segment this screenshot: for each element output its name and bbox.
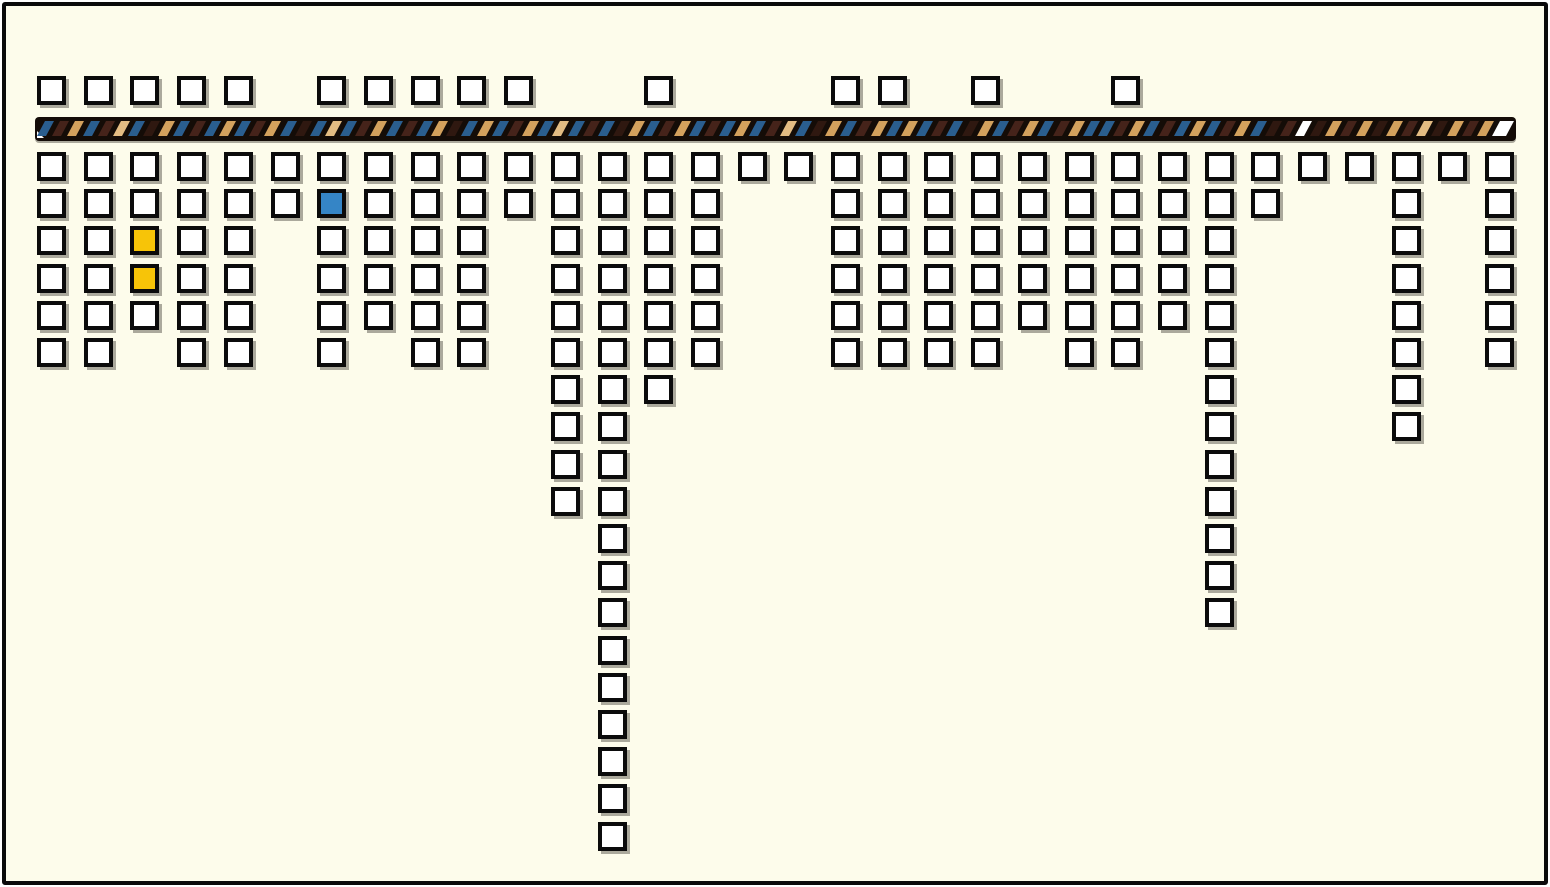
tally-square[interactable] [1205, 226, 1234, 255]
tally-square[interactable] [831, 189, 860, 218]
band-stripe [477, 121, 494, 136]
tally-square[interactable] [1205, 264, 1234, 293]
band-stripe-white [1492, 121, 1514, 136]
band-stripe [1068, 121, 1085, 136]
band-stripe [1083, 121, 1100, 136]
tally-square[interactable] [224, 264, 253, 293]
band-stripe [1401, 121, 1418, 136]
band-stripe [916, 121, 933, 136]
band-stripe [810, 121, 827, 136]
band-stripe [977, 121, 994, 136]
tally-square[interactable] [691, 338, 720, 367]
tally-square[interactable] [784, 152, 813, 181]
tally-square[interactable] [1065, 189, 1094, 218]
tally-square[interactable] [224, 338, 253, 367]
tally-square[interactable] [924, 301, 953, 330]
tally-square[interactable] [1065, 264, 1094, 293]
band-stripe [734, 121, 751, 136]
tally-square[interactable] [1018, 152, 1047, 181]
band-stripe [992, 121, 1009, 136]
band-stripe [67, 121, 84, 136]
band-stripe [780, 121, 797, 136]
tally-square[interactable] [364, 264, 393, 293]
band-stripe [1386, 121, 1403, 136]
tally-square[interactable] [84, 189, 113, 218]
tally-square[interactable] [1205, 338, 1234, 367]
band-stripe [765, 121, 782, 136]
tally-square[interactable] [1205, 375, 1234, 404]
band-stripe [1280, 121, 1297, 136]
tally-square[interactable] [177, 301, 206, 330]
band-stripe [613, 121, 630, 136]
top-marker-square[interactable] [971, 76, 1000, 105]
tally-square[interactable] [411, 301, 440, 330]
stage [0, 0, 1550, 887]
tally-square[interactable] [644, 264, 673, 293]
tally-square[interactable] [971, 152, 1000, 181]
tally-square[interactable] [37, 189, 66, 218]
top-marker-square[interactable] [37, 76, 66, 105]
tally-square[interactable] [1111, 226, 1140, 255]
tally-square[interactable] [644, 189, 673, 218]
tally-square[interactable] [1298, 152, 1327, 181]
band-stripe [658, 121, 675, 136]
band-stripe [537, 121, 554, 136]
tally-square[interactable] [598, 152, 627, 181]
tally-square[interactable] [1485, 152, 1514, 181]
tally-square[interactable] [551, 375, 580, 404]
tally-square[interactable] [878, 189, 907, 218]
tally-square[interactable] [1345, 152, 1374, 181]
top-marker-square[interactable] [317, 76, 346, 105]
band-stripe [1159, 121, 1176, 136]
band-stripe [855, 121, 872, 136]
band-stripe [1204, 121, 1221, 136]
band-stripe [628, 121, 645, 136]
tally-square[interactable] [504, 189, 533, 218]
tally-square[interactable] [1205, 301, 1234, 330]
band-stripe [1022, 121, 1039, 136]
band-stripe [1007, 121, 1024, 136]
top-marker-square[interactable] [457, 76, 486, 105]
tally-square[interactable] [37, 338, 66, 367]
tally-square[interactable] [1485, 264, 1514, 293]
band-stripe [249, 121, 266, 136]
tally-square[interactable] [971, 226, 1000, 255]
band-stripe [568, 121, 585, 136]
tally-square[interactable] [691, 264, 720, 293]
band-stripe [1265, 121, 1282, 136]
band-stripe [264, 121, 281, 136]
tally-square[interactable] [551, 338, 580, 367]
tally-square[interactable] [971, 301, 1000, 330]
top-marker-square[interactable] [831, 76, 860, 105]
tally-square[interactable] [1065, 226, 1094, 255]
band-stripe [52, 121, 69, 136]
top-marker-square[interactable] [878, 76, 907, 105]
tally-square[interactable] [457, 189, 486, 218]
tally-square[interactable] [1158, 264, 1187, 293]
tally-square[interactable] [1251, 189, 1280, 218]
tally-square[interactable] [598, 598, 627, 627]
band-stripe [416, 121, 433, 136]
tally-square[interactable] [1392, 301, 1421, 330]
tally-square[interactable] [1205, 561, 1234, 590]
tally-square[interactable] [1158, 189, 1187, 218]
tally-square[interactable] [271, 152, 300, 181]
tally-square[interactable] [551, 189, 580, 218]
tally-square[interactable] [878, 152, 907, 181]
band-stripe [704, 121, 721, 136]
band-stripe [886, 121, 903, 136]
band-stripe [931, 121, 948, 136]
band-stripe [1250, 121, 1267, 136]
band-stripe [83, 121, 100, 136]
band-stripe [719, 121, 736, 136]
tally-square[interactable] [457, 152, 486, 181]
tally-square[interactable] [831, 152, 860, 181]
tally-square[interactable] [598, 673, 627, 702]
tally-square[interactable] [1111, 152, 1140, 181]
tally-square[interactable] [598, 375, 627, 404]
tally-square[interactable] [457, 338, 486, 367]
tally-square[interactable] [1205, 598, 1234, 627]
tally-square[interactable] [130, 301, 159, 330]
tally-square[interactable] [457, 301, 486, 330]
tally-square[interactable] [971, 264, 1000, 293]
band-stripe [173, 121, 190, 136]
tally-square[interactable] [364, 189, 393, 218]
tally-square[interactable] [1392, 338, 1421, 367]
tally-square[interactable] [598, 747, 627, 776]
tally-square[interactable] [364, 301, 393, 330]
tally-square[interactable] [457, 226, 486, 255]
tally-square[interactable] [1158, 152, 1187, 181]
tally-square[interactable] [411, 338, 440, 367]
tally-square[interactable] [130, 189, 159, 218]
tally-square[interactable] [598, 710, 627, 739]
tally-square[interactable] [37, 152, 66, 181]
tally-square[interactable] [551, 226, 580, 255]
tally-square[interactable] [84, 264, 113, 293]
tally-square[interactable] [551, 152, 580, 181]
tally-square[interactable] [551, 301, 580, 330]
band-stripe [1416, 121, 1433, 136]
band-stripe [1431, 121, 1448, 136]
tally-square[interactable] [924, 189, 953, 218]
tally-square[interactable] [551, 412, 580, 441]
tally-square[interactable] [1018, 264, 1047, 293]
band-stripe [507, 121, 524, 136]
tally-square[interactable] [598, 561, 627, 590]
band-stripe [370, 121, 387, 136]
highlighted-square-yellow[interactable] [130, 264, 159, 293]
band-stripe [113, 121, 130, 136]
tally-square[interactable] [878, 264, 907, 293]
tally-square[interactable] [37, 264, 66, 293]
tally-square[interactable] [504, 152, 533, 181]
tally-square[interactable] [457, 264, 486, 293]
tally-square[interactable] [598, 524, 627, 553]
tally-square[interactable] [644, 338, 673, 367]
tally-square[interactable] [177, 226, 206, 255]
band-stripe [825, 121, 842, 136]
tally-square[interactable] [1485, 301, 1514, 330]
band-stripe [1234, 121, 1251, 136]
tally-square[interactable] [411, 226, 440, 255]
tally-square[interactable] [644, 152, 673, 181]
band-stripe [189, 121, 206, 136]
tally-square[interactable] [1158, 226, 1187, 255]
band-stripe [386, 121, 403, 136]
tally-square[interactable] [831, 338, 860, 367]
band-stripe [204, 121, 221, 136]
tally-square[interactable] [1485, 338, 1514, 367]
tally-square[interactable] [878, 301, 907, 330]
band-stripe [461, 121, 478, 136]
tally-square[interactable] [738, 152, 767, 181]
tally-square[interactable] [317, 338, 346, 367]
band-stripe [143, 121, 160, 136]
tally-square[interactable] [924, 338, 953, 367]
highlighted-square-blue[interactable] [317, 189, 346, 218]
tally-square[interactable] [177, 189, 206, 218]
tally-square[interactable] [878, 226, 907, 255]
band-stripe [946, 121, 963, 136]
highlighted-square-yellow[interactable] [130, 226, 159, 255]
tally-square[interactable] [317, 301, 346, 330]
tally-square[interactable] [644, 226, 673, 255]
tally-square[interactable] [411, 152, 440, 181]
tally-square[interactable] [130, 152, 159, 181]
tally-square[interactable] [317, 152, 346, 181]
band-stripe [1037, 121, 1054, 136]
band-stripe [1143, 121, 1160, 136]
band-stripe [446, 121, 463, 136]
tally-square[interactable] [551, 487, 580, 516]
band-stripe [522, 121, 539, 136]
tally-square[interactable] [831, 264, 860, 293]
band-stripe [325, 121, 342, 136]
top-marker-square[interactable] [411, 76, 440, 105]
top-marker-square[interactable] [1111, 76, 1140, 105]
tally-square[interactable] [691, 189, 720, 218]
tally-square[interactable] [1251, 152, 1280, 181]
band-stripe [128, 121, 145, 136]
tally-square[interactable] [411, 264, 440, 293]
tally-square[interactable] [1438, 152, 1467, 181]
tally-square[interactable] [924, 226, 953, 255]
tally-square[interactable] [224, 152, 253, 181]
band-stripe [1340, 121, 1357, 136]
tally-square[interactable] [1392, 264, 1421, 293]
top-marker-square[interactable] [84, 76, 113, 105]
tally-square[interactable] [691, 152, 720, 181]
tally-square[interactable] [1065, 152, 1094, 181]
band-stripe-white [1295, 121, 1312, 136]
tally-square[interactable] [1111, 338, 1140, 367]
tally-square[interactable] [84, 301, 113, 330]
tally-square[interactable] [971, 338, 1000, 367]
band-stripe [1174, 121, 1191, 136]
tally-square[interactable] [1392, 152, 1421, 181]
tally-square[interactable] [1392, 189, 1421, 218]
band-stripe [901, 121, 918, 136]
tally-square[interactable] [598, 301, 627, 330]
tally-square[interactable] [84, 226, 113, 255]
band-stripe [295, 121, 312, 136]
band-stripe [1462, 121, 1479, 136]
tally-square[interactable] [177, 264, 206, 293]
band-stripe [552, 121, 569, 136]
tally-square[interactable] [598, 226, 627, 255]
tally-square[interactable] [37, 226, 66, 255]
tally-square[interactable] [177, 152, 206, 181]
tally-square[interactable] [224, 301, 253, 330]
tally-square[interactable] [924, 264, 953, 293]
top-marker-square[interactable] [224, 76, 253, 105]
tally-square[interactable] [691, 226, 720, 255]
tally-square[interactable] [84, 338, 113, 367]
band-stripe [674, 121, 691, 136]
tally-square[interactable] [598, 412, 627, 441]
top-marker-square[interactable] [177, 76, 206, 105]
canvas [0, 0, 1550, 887]
tally-square[interactable] [598, 636, 627, 665]
tally-square[interactable] [1205, 524, 1234, 553]
tally-square[interactable] [1158, 301, 1187, 330]
tally-square[interactable] [1111, 301, 1140, 330]
tally-square[interactable] [598, 487, 627, 516]
band-stripe [1477, 121, 1494, 136]
tally-square[interactable] [598, 784, 627, 813]
tally-square[interactable] [1205, 487, 1234, 516]
band-stripe [280, 121, 297, 136]
band-stripe [1189, 121, 1206, 136]
tally-square[interactable] [1111, 189, 1140, 218]
tally-square[interactable] [691, 301, 720, 330]
tally-square[interactable] [1392, 375, 1421, 404]
band-stripe [749, 121, 766, 136]
tally-square[interactable] [971, 189, 1000, 218]
band-stripe [401, 121, 418, 136]
band-stripe [37, 121, 54, 136]
band-stripe [219, 121, 236, 136]
tally-square[interactable] [317, 264, 346, 293]
tally-square[interactable] [1392, 412, 1421, 441]
tally-square[interactable] [364, 152, 393, 181]
band-stripe [871, 121, 888, 136]
tally-square[interactable] [1205, 450, 1234, 479]
tally-square[interactable] [37, 301, 66, 330]
band-stripe [234, 121, 251, 136]
top-marker-square[interactable] [504, 76, 533, 105]
band-stripe [689, 121, 706, 136]
band-stripe [1053, 121, 1070, 136]
tally-square[interactable] [831, 226, 860, 255]
band-stripe [98, 121, 115, 136]
band-stripe [1310, 121, 1327, 136]
top-marker-square[interactable] [130, 76, 159, 105]
band-stripe [795, 121, 812, 136]
band-stripe [962, 121, 979, 136]
band-stripe [1371, 121, 1388, 136]
tally-square[interactable] [271, 189, 300, 218]
tally-square[interactable] [317, 226, 346, 255]
tally-square[interactable] [598, 189, 627, 218]
tally-square[interactable] [1018, 226, 1047, 255]
band-stripe [492, 121, 509, 136]
top-marker-square[interactable] [364, 76, 393, 105]
band-stripe [1356, 121, 1373, 136]
tally-square[interactable] [598, 450, 627, 479]
tally-square[interactable] [924, 152, 953, 181]
band-stripe [583, 121, 600, 136]
tally-square[interactable] [1485, 189, 1514, 218]
tally-square[interactable] [177, 338, 206, 367]
band-stripe [598, 121, 615, 136]
tally-square[interactable] [1111, 264, 1140, 293]
tally-square[interactable] [411, 189, 440, 218]
tally-square[interactable] [1392, 226, 1421, 255]
band-stripe [431, 121, 448, 136]
tally-square[interactable] [598, 822, 627, 851]
tally-square[interactable] [1205, 189, 1234, 218]
tally-square[interactable] [1018, 189, 1047, 218]
tally-square[interactable] [1018, 301, 1047, 330]
tally-square[interactable] [364, 226, 393, 255]
band-stripe [1098, 121, 1115, 136]
tally-square[interactable] [224, 189, 253, 218]
tally-square[interactable] [644, 375, 673, 404]
tally-square[interactable] [1065, 338, 1094, 367]
tally-square[interactable] [551, 450, 580, 479]
woven-band [35, 117, 1516, 141]
tally-square[interactable] [878, 338, 907, 367]
tally-square[interactable] [84, 152, 113, 181]
tally-square[interactable] [644, 301, 673, 330]
tally-square[interactable] [1065, 301, 1094, 330]
band-stripe [340, 121, 357, 136]
tally-square[interactable] [1205, 152, 1234, 181]
top-marker-square[interactable] [644, 76, 673, 105]
tally-square[interactable] [224, 226, 253, 255]
tally-square[interactable] [1205, 412, 1234, 441]
tally-square[interactable] [598, 338, 627, 367]
tally-square[interactable] [831, 301, 860, 330]
tally-square[interactable] [598, 264, 627, 293]
tally-square[interactable] [551, 264, 580, 293]
band-stripe [310, 121, 327, 136]
band-stripe [1447, 121, 1464, 136]
band-stripe [1219, 121, 1236, 136]
band-stripe [1113, 121, 1130, 136]
tally-square[interactable] [1485, 226, 1514, 255]
